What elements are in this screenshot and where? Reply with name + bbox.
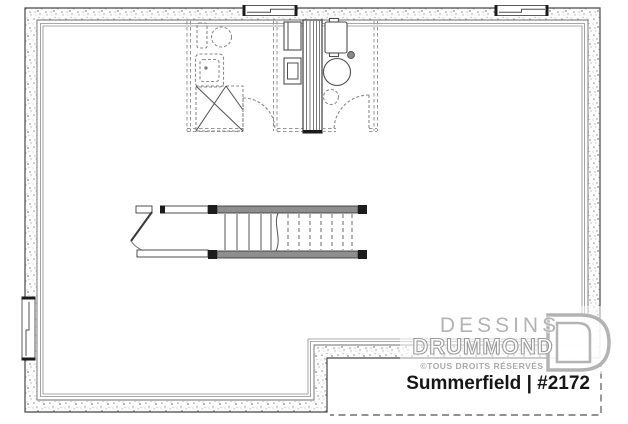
stair-bottom-stub-wall xyxy=(137,250,208,257)
floor-plan-canvas: DESSINS DRUMMOND ©TOUS DROITS RÉSERVÉS S… xyxy=(0,0,628,424)
stair-treads xyxy=(225,213,352,251)
watermark-rights-notice: ©TOUS DROITS RÉSERVÉS xyxy=(412,361,552,371)
bathroom-door-swing xyxy=(243,98,275,130)
corner-shower xyxy=(196,86,243,131)
furnace xyxy=(325,19,347,57)
stair-break-line xyxy=(276,213,278,251)
basement-window-top-right xyxy=(495,5,549,16)
basement-window-left-wall xyxy=(22,297,36,361)
sink-vanity xyxy=(196,54,224,87)
sump-pit xyxy=(324,90,339,105)
shelf-unit xyxy=(284,22,301,50)
stair-top-stub-wall xyxy=(136,206,152,213)
chimney-duct-chase xyxy=(303,20,322,133)
basement-window-top-left xyxy=(243,5,298,16)
faucet-dot xyxy=(204,66,207,69)
toilet xyxy=(197,23,232,48)
water-heater xyxy=(324,59,351,86)
watermark-brand-line2: DRUMMOND xyxy=(404,334,562,360)
pipe-stack xyxy=(348,52,355,59)
staircase-up xyxy=(131,205,367,259)
electrical-panel xyxy=(284,58,301,84)
mechanical-room-door-swing xyxy=(334,95,369,130)
stair-door xyxy=(131,212,152,251)
plan-name-and-number: Summerfield | #2172 xyxy=(378,373,590,395)
